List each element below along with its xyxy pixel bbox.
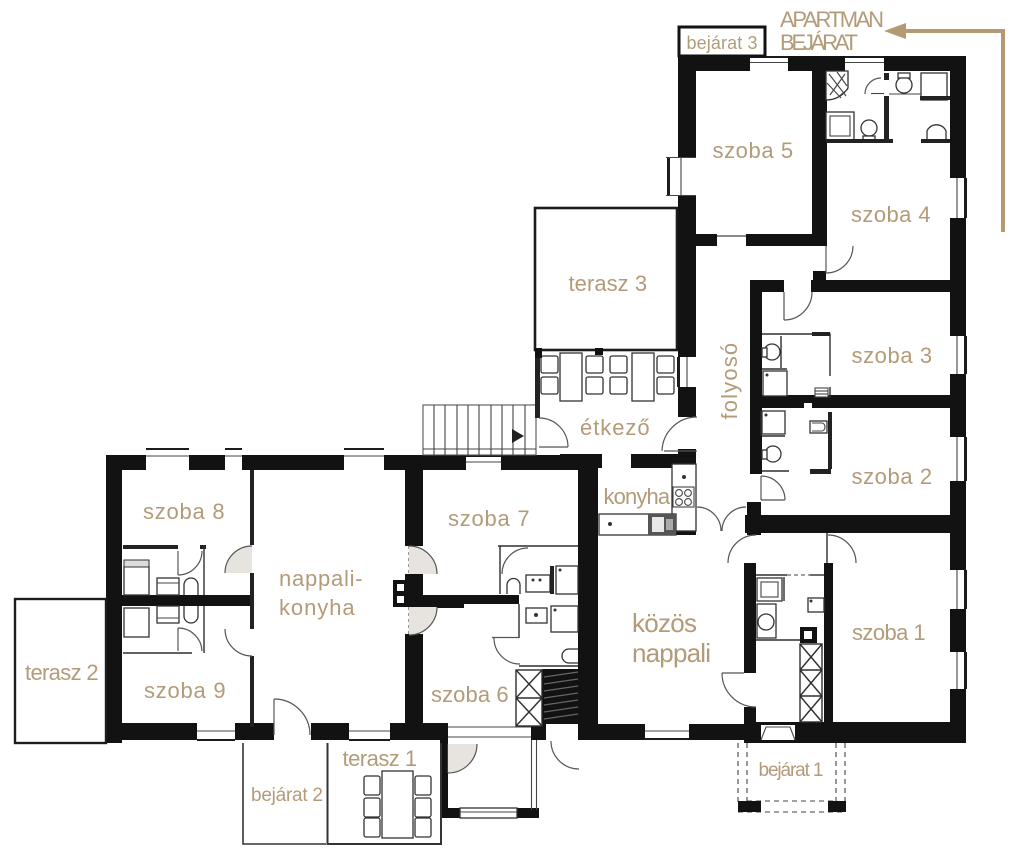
svg-text:BEJÁRAT: BEJÁRAT <box>780 30 858 55</box>
svg-text:szoba 8: szoba 8 <box>143 499 225 524</box>
svg-text:konyha: konyha <box>279 595 355 620</box>
svg-text:folyosó: folyosó <box>717 343 742 420</box>
svg-text:szoba 6: szoba 6 <box>431 682 509 707</box>
svg-text:APARTMAN: APARTMAN <box>780 7 884 32</box>
svg-text:szoba 5: szoba 5 <box>713 138 794 163</box>
svg-text:bejárat 2: bejárat 2 <box>251 785 323 806</box>
svg-text:konyha: konyha <box>604 484 671 509</box>
svg-text:szoba 3: szoba 3 <box>852 343 933 368</box>
svg-text:szoba 9: szoba 9 <box>144 678 226 703</box>
svg-text:terasz 1: terasz 1 <box>343 746 418 771</box>
svg-text:szoba 7: szoba 7 <box>448 506 530 531</box>
svg-text:nappali: nappali <box>632 638 711 668</box>
svg-text:szoba 1: szoba 1 <box>852 620 926 645</box>
svg-text:terasz 2: terasz 2 <box>25 660 99 685</box>
svg-text:közös: közös <box>632 608 697 638</box>
svg-text:szoba 2: szoba 2 <box>852 464 933 489</box>
svg-text:bejárat 3: bejárat 3 <box>687 33 758 53</box>
svg-text:szoba 4: szoba 4 <box>851 202 931 227</box>
svg-text:bejárat 1: bejárat 1 <box>759 760 824 781</box>
svg-text:nappali-: nappali- <box>279 566 363 591</box>
svg-text:étkező: étkező <box>580 415 650 440</box>
svg-text:terasz 3: terasz 3 <box>569 271 648 296</box>
